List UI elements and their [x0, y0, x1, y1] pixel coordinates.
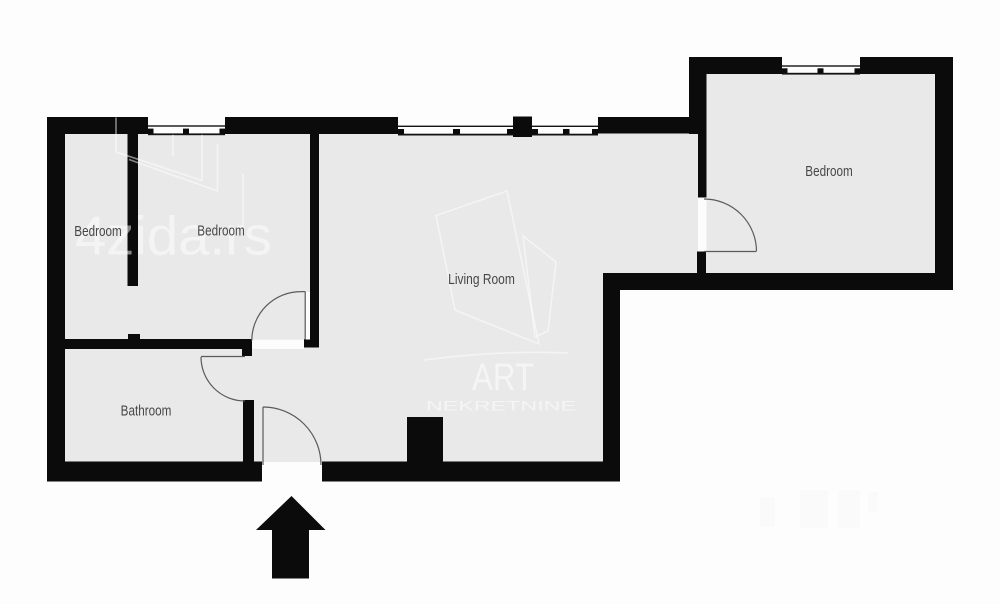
svg-text:ART: ART: [472, 357, 534, 399]
svg-text:Bedroom: Bedroom: [74, 222, 121, 239]
svg-text:Bedroom: Bedroom: [805, 162, 852, 179]
svg-text:Bedroom: Bedroom: [197, 222, 244, 239]
svg-text:Bathroom: Bathroom: [121, 402, 172, 419]
svg-text:NEKRETNINE: NEKRETNINE: [426, 398, 576, 414]
svg-text:Living Room: Living Room: [448, 271, 515, 288]
